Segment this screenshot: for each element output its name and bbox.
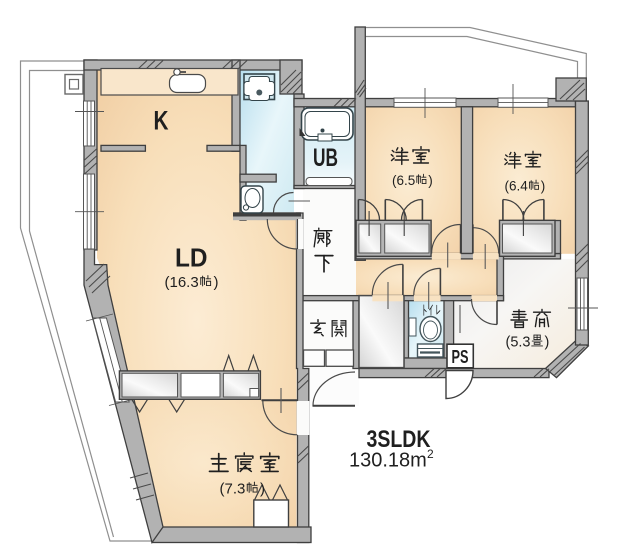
svg-text:2: 2 [427, 447, 434, 461]
svg-text:K: K [154, 106, 169, 136]
svg-text:PS: PS [452, 347, 469, 367]
svg-text:): ) [428, 173, 433, 188]
svg-text:(6.4: (6.4 [505, 179, 529, 194]
svg-text:(6.5: (6.5 [392, 173, 415, 188]
svg-text:UB: UB [313, 144, 338, 172]
svg-text:): ) [545, 335, 550, 351]
svg-text:(16.3: (16.3 [165, 274, 199, 291]
svg-text:): ) [260, 481, 265, 498]
svg-text:130.18m: 130.18m [349, 450, 427, 472]
svg-text:(7.3: (7.3 [220, 481, 246, 498]
svg-text:): ) [214, 274, 219, 291]
svg-text:(5.3: (5.3 [506, 335, 531, 351]
svg-text:): ) [541, 179, 546, 194]
svg-text:LD: LD [175, 243, 208, 273]
